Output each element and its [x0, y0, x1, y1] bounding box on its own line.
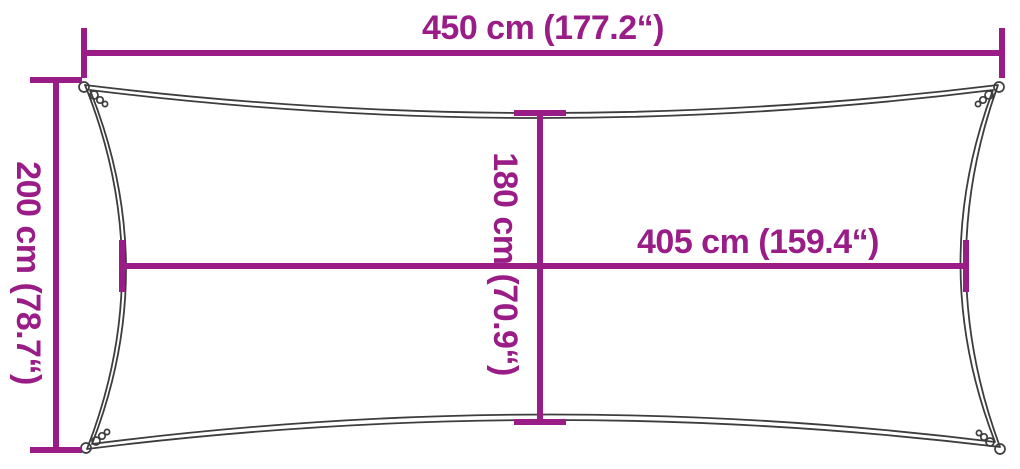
left-height-label: 200 cm (78.7“) — [11, 161, 45, 385]
center-width-label: 405 cm (159.4“) — [637, 225, 879, 259]
shade-sail-dimension-diagram: 450 cm (177.2“) 200 cm (78.7“) 180 cm (7… — [0, 0, 1020, 469]
center-height-label: 180 cm (70.9“) — [488, 152, 522, 376]
top-width-label: 450 cm (177.2“) — [422, 11, 664, 45]
